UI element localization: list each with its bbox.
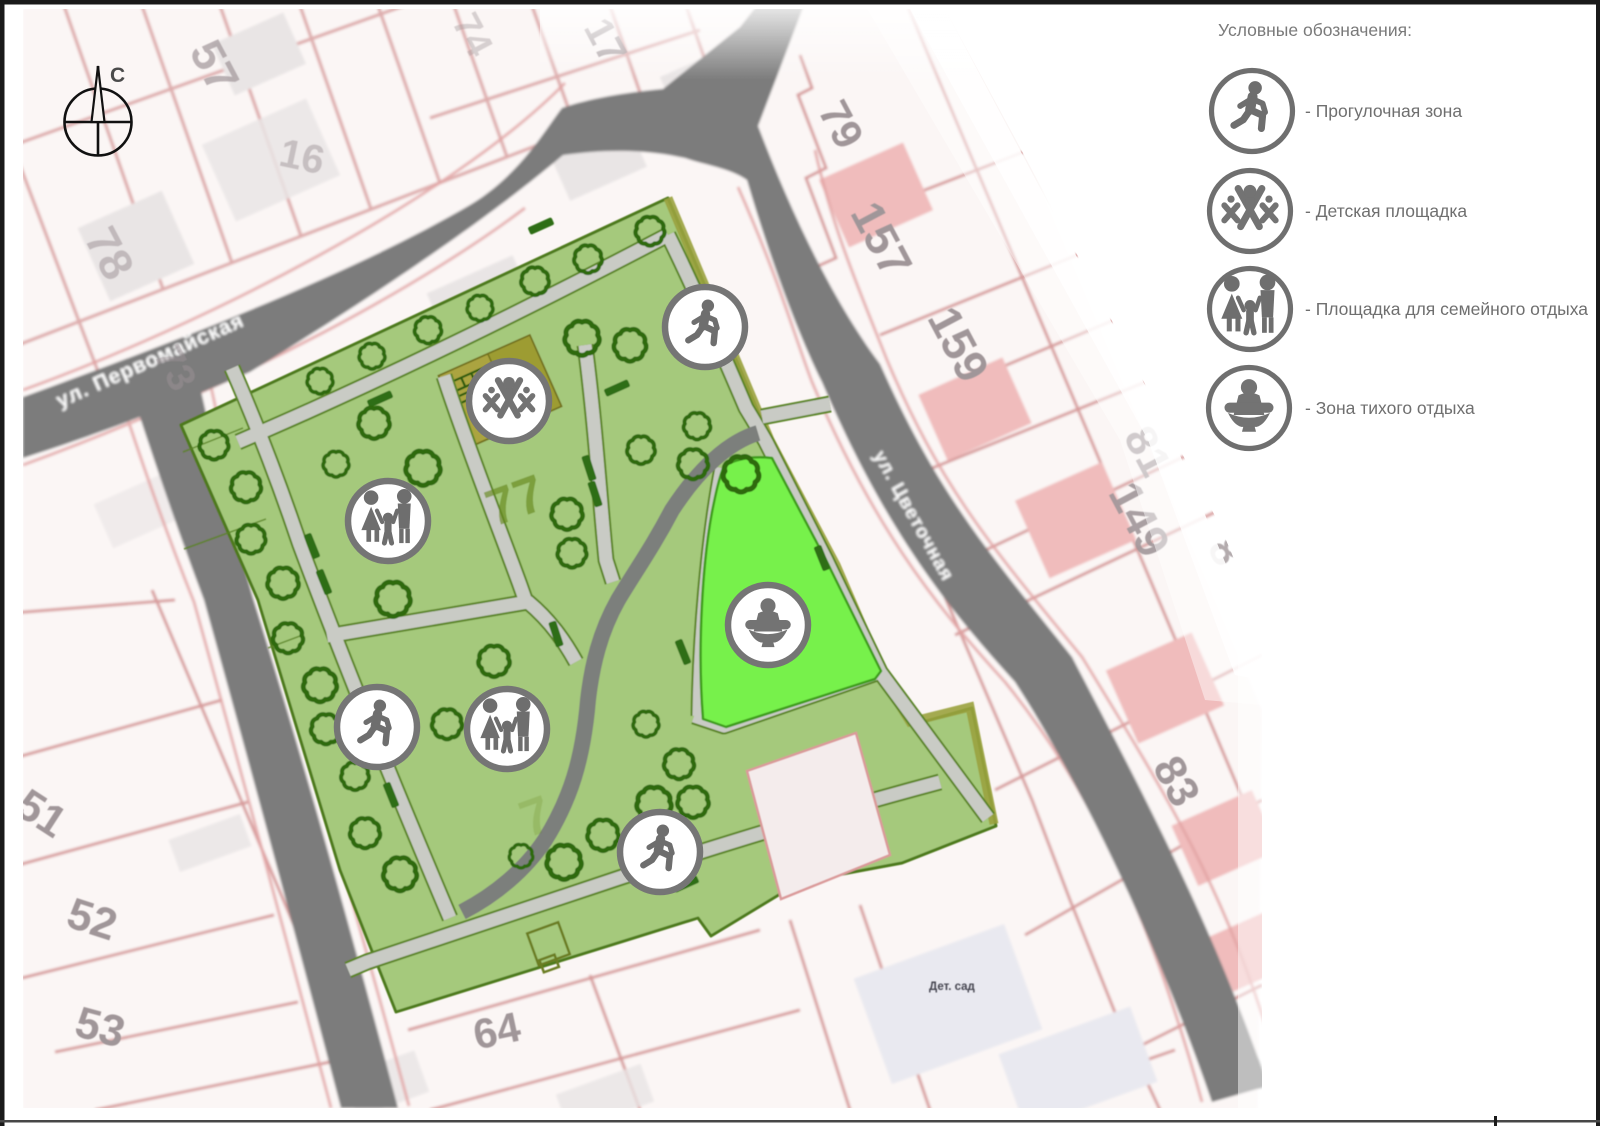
svg-text:Условные обозначения:: Условные обозначения: — [1218, 20, 1412, 40]
svg-text:16: 16 — [276, 131, 329, 183]
svg-text:- Детская площадка: - Детская площадка — [1305, 201, 1467, 221]
svg-text:Дет. сад: Дет. сад — [929, 981, 976, 993]
svg-text:- Прогулочная зона: - Прогулочная зона — [1305, 101, 1462, 121]
svg-text:С: С — [110, 64, 125, 87]
svg-text:- Зона тихого отдыха: - Зона тихого отдыха — [1305, 398, 1475, 418]
svg-text:- Площадка для семейного отдых: - Площадка для семейного отдыха — [1305, 299, 1588, 319]
